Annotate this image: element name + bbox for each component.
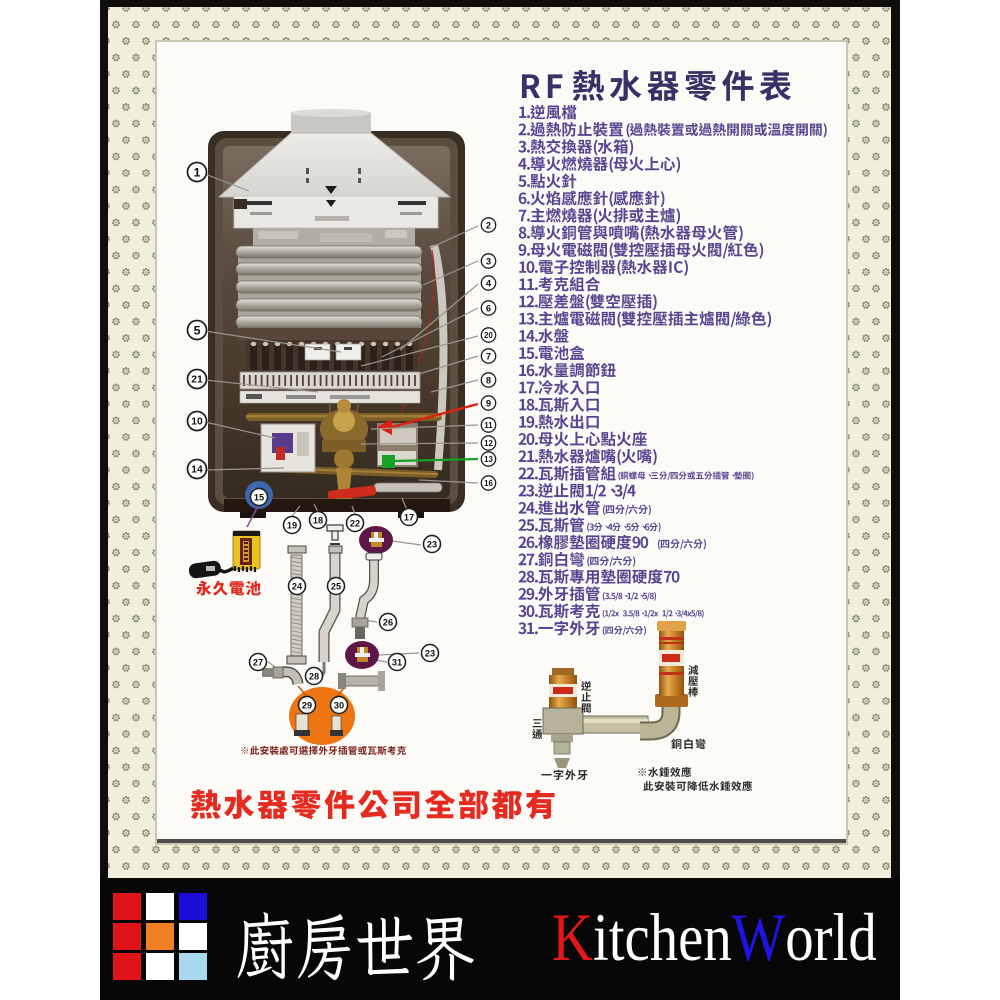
svg-text:29: 29 <box>302 700 312 710</box>
svg-text:10: 10 <box>191 417 203 428</box>
svg-text:31: 31 <box>392 657 402 667</box>
svg-text:23: 23 <box>425 648 435 658</box>
svg-text:17: 17 <box>404 512 414 522</box>
svg-text:3: 3 <box>486 255 491 266</box>
svg-text:7: 7 <box>486 350 491 361</box>
svg-text:18: 18 <box>313 515 323 525</box>
svg-text:15: 15 <box>254 492 264 502</box>
svg-text:2: 2 <box>486 219 491 230</box>
svg-text:13: 13 <box>484 455 493 464</box>
svg-text:16: 16 <box>484 479 493 488</box>
svg-text:12: 12 <box>484 439 493 448</box>
svg-text:14: 14 <box>191 465 203 476</box>
svg-text:8: 8 <box>486 374 491 385</box>
svg-text:25: 25 <box>331 581 341 591</box>
svg-text:27: 27 <box>253 657 263 667</box>
svg-text:23: 23 <box>427 539 437 549</box>
svg-text:30: 30 <box>334 700 344 710</box>
svg-text:19: 19 <box>287 520 297 530</box>
svg-text:20: 20 <box>484 331 493 340</box>
svg-text:28: 28 <box>309 671 319 681</box>
svg-text:24: 24 <box>292 581 303 591</box>
svg-text:22: 22 <box>350 518 360 528</box>
svg-text:4: 4 <box>486 277 492 288</box>
svg-text:KitchenWorld: KitchenWorld <box>552 899 877 975</box>
svg-text:26: 26 <box>383 617 393 627</box>
svg-text:6: 6 <box>486 302 491 313</box>
svg-text:1: 1 <box>194 165 201 179</box>
svg-text:11: 11 <box>484 421 493 430</box>
svg-text:9: 9 <box>486 397 491 408</box>
svg-text:5: 5 <box>194 323 201 337</box>
svg-text:21: 21 <box>191 375 203 386</box>
